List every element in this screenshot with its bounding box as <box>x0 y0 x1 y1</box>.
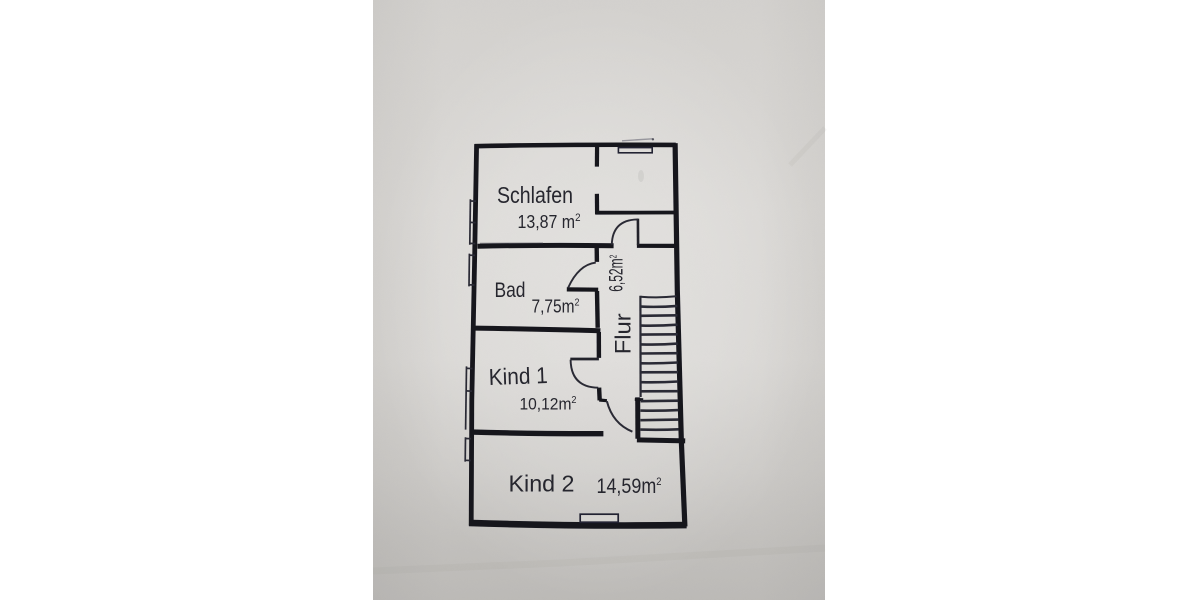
svg-text:Kind 1: Kind 1 <box>488 362 548 390</box>
svg-text:Flur: Flur <box>611 313 636 354</box>
svg-text:6,52m2: 6,52m2 <box>606 255 628 292</box>
svg-text:Bad: Bad <box>495 278 526 302</box>
svg-text:14,59m2: 14,59m2 <box>597 475 662 498</box>
svg-text:10,12m2: 10,12m2 <box>520 395 577 414</box>
svg-text:Kind 2: Kind 2 <box>509 471 575 497</box>
svg-text:Schlafen: Schlafen <box>497 182 573 208</box>
svg-text:13,87 m2: 13,87 m2 <box>518 212 581 232</box>
svg-text:7,75m2: 7,75m2 <box>532 297 580 317</box>
